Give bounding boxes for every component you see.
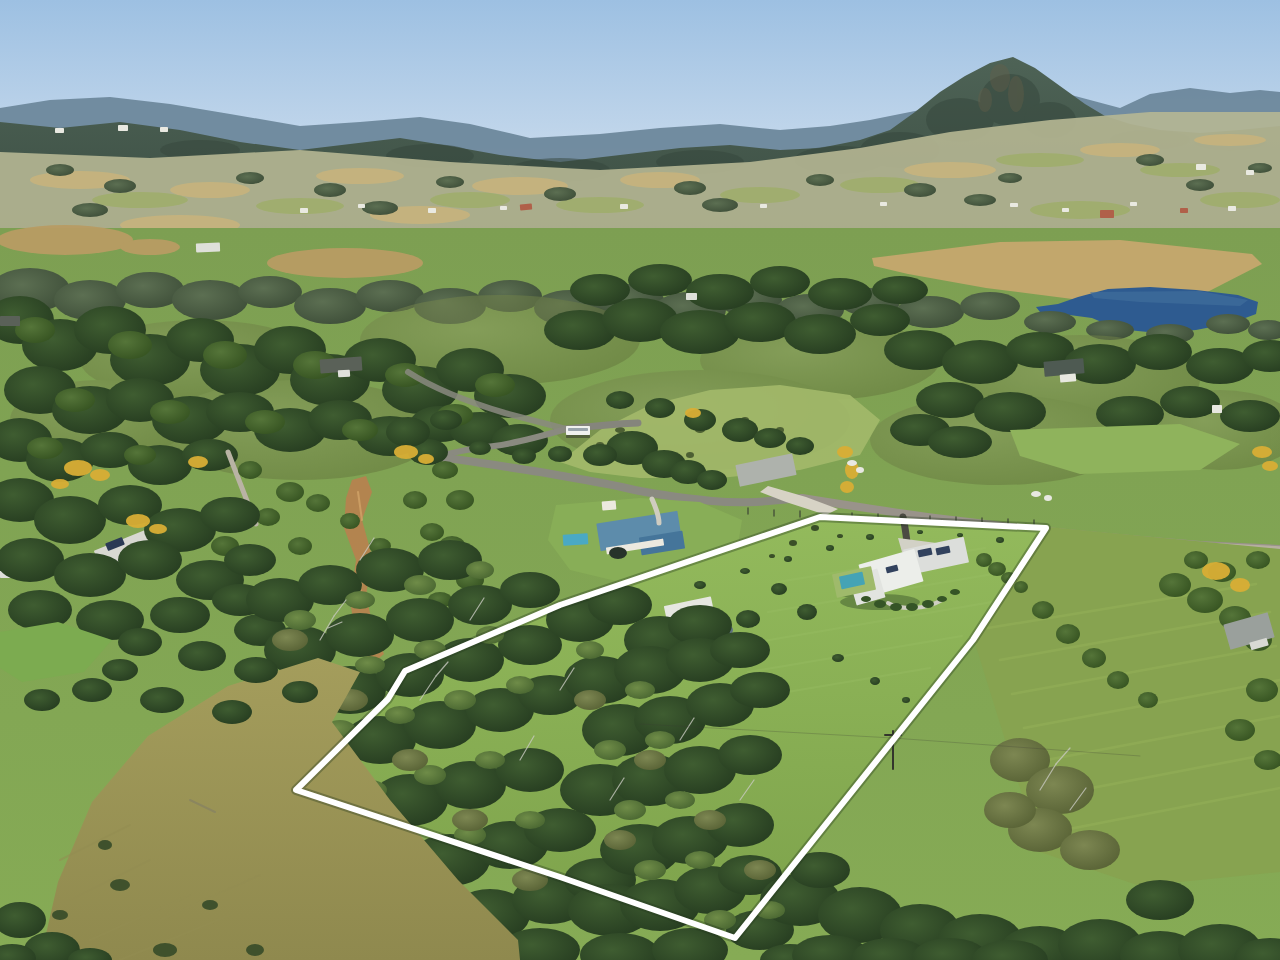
trampoline (609, 547, 627, 559)
bus-windows (568, 428, 588, 431)
bus-shadow (566, 435, 590, 438)
aerial-photo-canvas (0, 0, 1280, 960)
aerial-property-photo (0, 0, 1280, 960)
blue-house-pool (563, 533, 589, 546)
